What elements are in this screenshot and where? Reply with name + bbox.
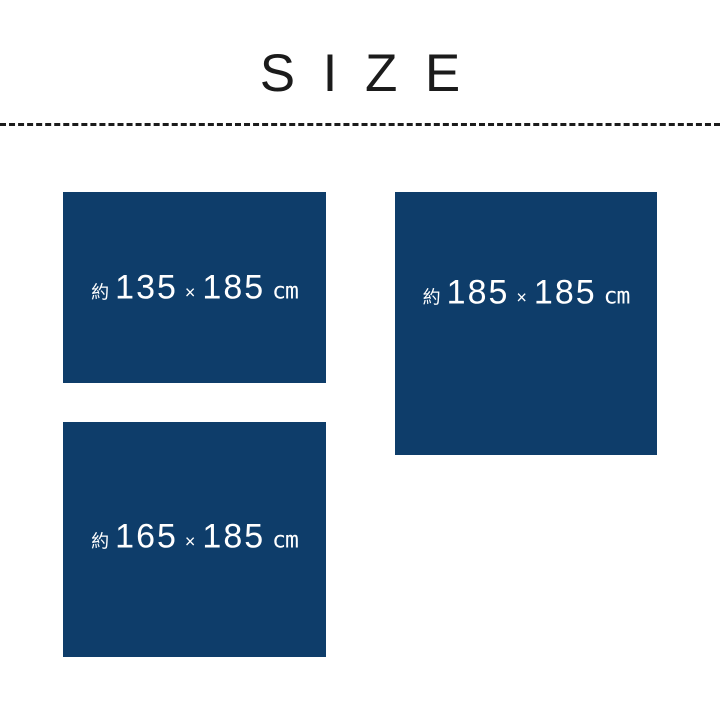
size-label-165x185: 約165×185cm: [63, 518, 326, 557]
page-title: SIZE: [0, 48, 720, 100]
multiply-sign: ×: [185, 532, 196, 552]
width-value: 185: [447, 274, 510, 312]
depth-value: 185: [534, 274, 597, 312]
size-label-135x185: 約135×185cm: [63, 268, 326, 307]
size-swatch-185x185: 約185×185cm: [395, 192, 657, 455]
size-label-185x185: 約185×185cm: [395, 274, 657, 313]
unit-label: cm: [272, 528, 298, 554]
size-diagram: SIZE 約135×185cm 約185×185cm 約165×185cm: [0, 0, 720, 720]
multiply-sign: ×: [516, 288, 527, 308]
width-value: 135: [115, 268, 178, 306]
depth-value: 185: [202, 268, 265, 306]
unit-label: cm: [272, 278, 298, 304]
dashed-divider: [0, 123, 720, 126]
width-value: 165: [115, 518, 178, 556]
size-swatch-135x185: 約135×185cm: [63, 192, 326, 383]
multiply-sign: ×: [185, 282, 196, 302]
depth-value: 185: [202, 518, 265, 556]
approx-prefix: 約: [91, 282, 109, 302]
approx-prefix: 約: [423, 288, 441, 308]
size-swatch-165x185: 約165×185cm: [63, 422, 326, 657]
approx-prefix: 約: [91, 532, 109, 552]
unit-label: cm: [604, 284, 630, 310]
